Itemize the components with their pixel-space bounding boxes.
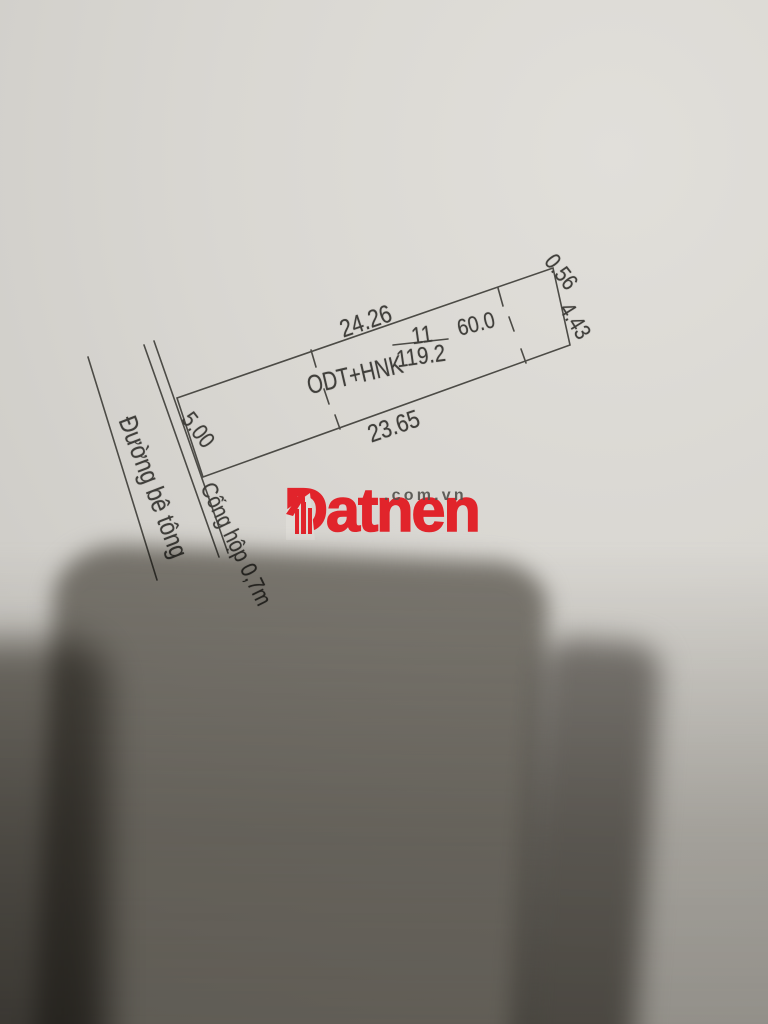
division-dash bbox=[509, 317, 514, 331]
division-dash bbox=[335, 415, 340, 429]
watermark-domain-text: .com.vn bbox=[384, 487, 467, 505]
buildings-icon bbox=[284, 492, 324, 544]
division-dash bbox=[311, 350, 316, 367]
survey-photo: 24.26 60.0 0.56 4.43 11 119.2 ODT+HNK 23… bbox=[0, 0, 768, 1024]
division-dash bbox=[498, 288, 503, 306]
